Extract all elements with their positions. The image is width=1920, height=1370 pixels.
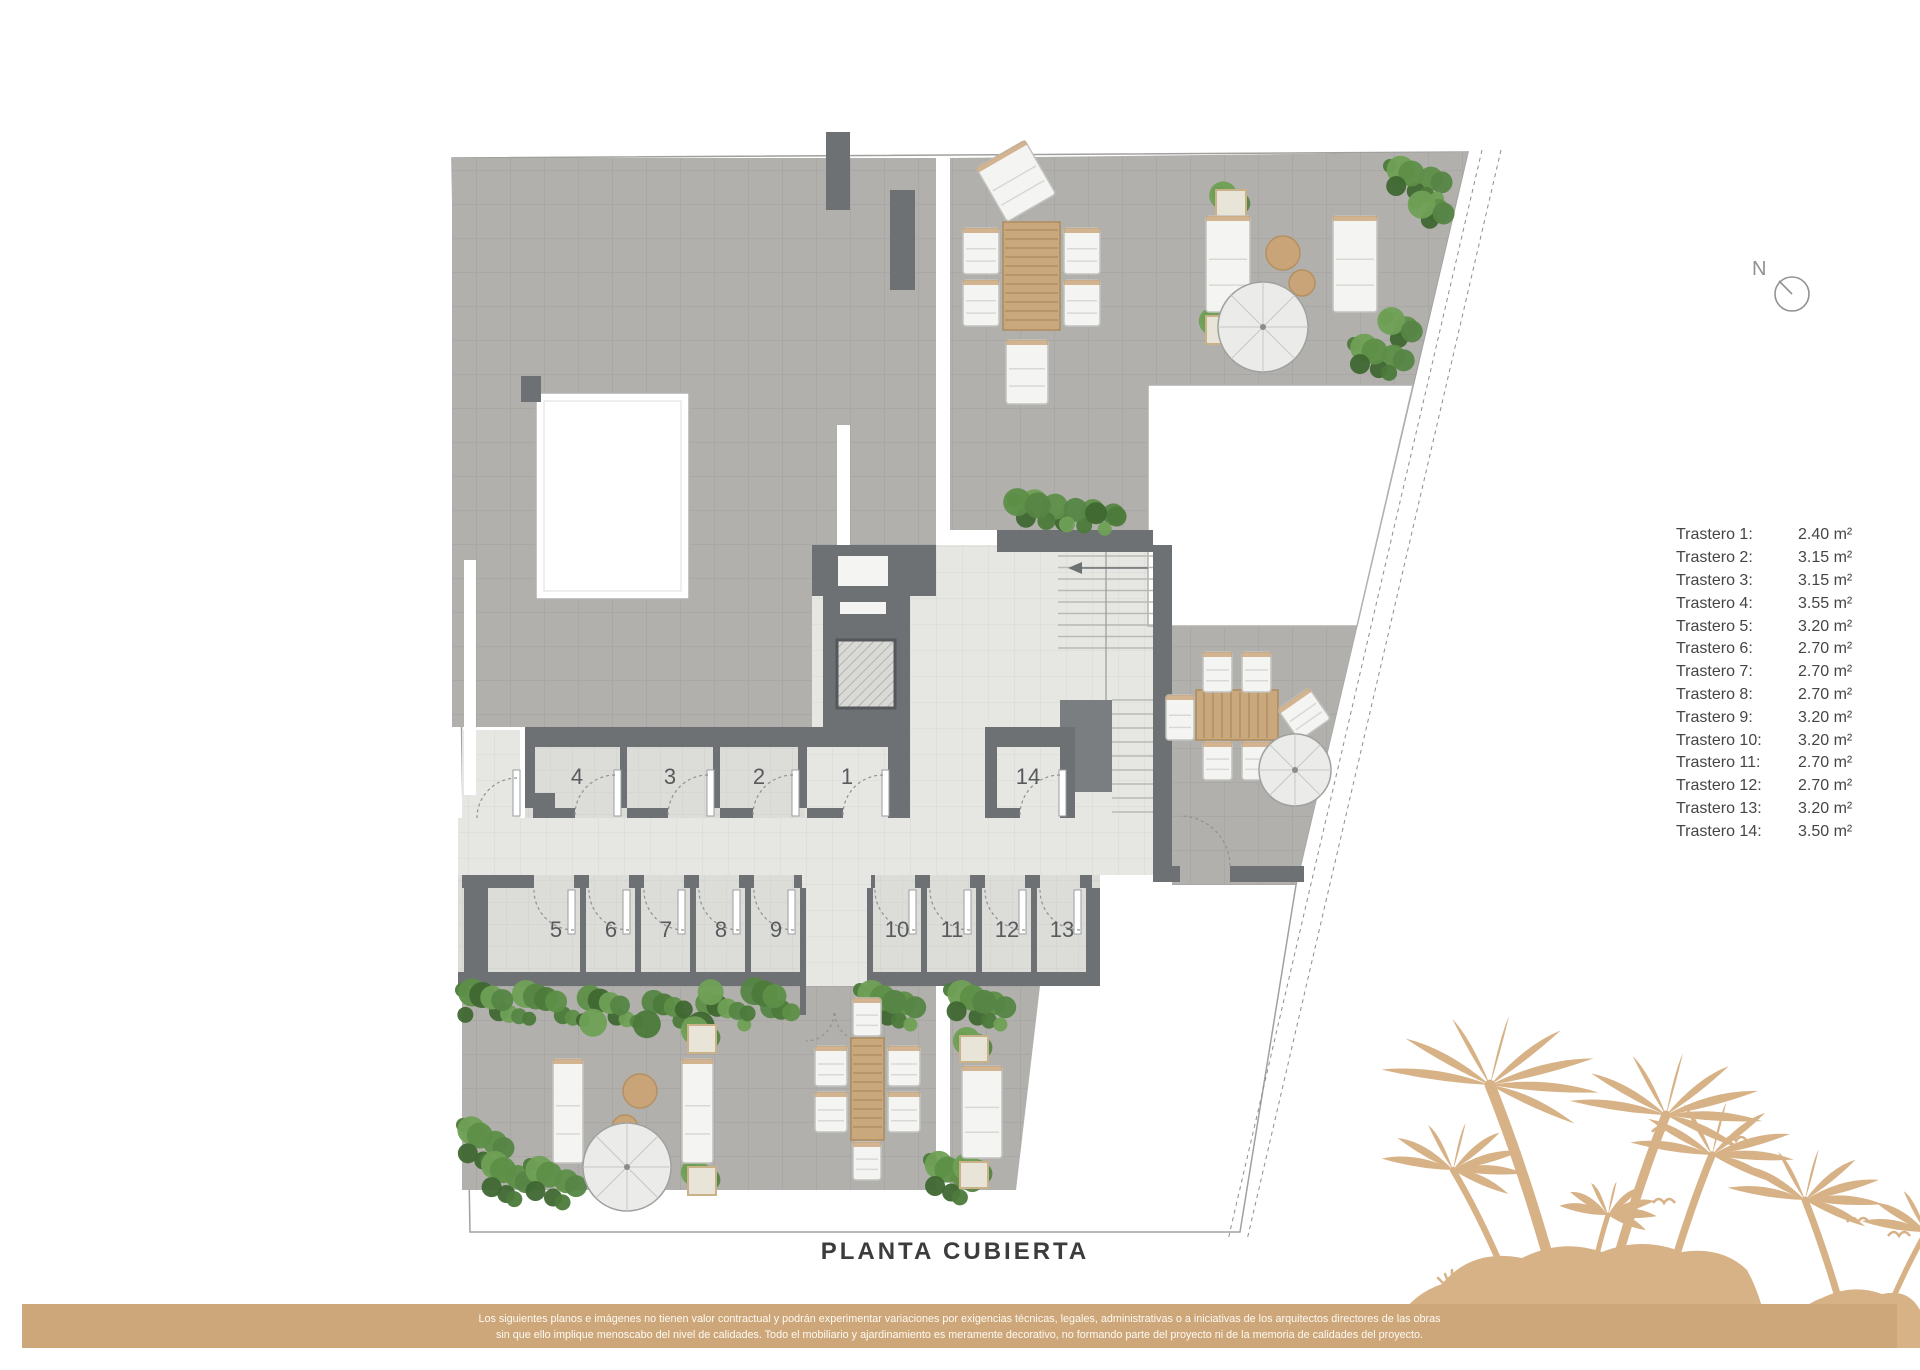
room-number-6: 6 — [605, 917, 617, 943]
room-number-2: 2 — [753, 764, 765, 790]
legend-label: Trastero 1: — [1676, 526, 1798, 544]
floor-plan-sheet: Trastero 1:2.40 m² Trastero 2:3.15 m² Tr… — [0, 0, 1920, 1370]
room-number-11: 11 — [941, 917, 964, 943]
legend-label: Trastero 2: — [1676, 549, 1798, 567]
legend-row: Trastero 7:2.70 m² — [1676, 661, 1896, 684]
legend-value: 3.55 m² — [1798, 595, 1852, 613]
legend-row: Trastero 12:2.70 m² — [1676, 775, 1896, 798]
disclaimer-bar: Los siguientes planos e imágenes no tien… — [22, 1304, 1897, 1348]
skylight — [838, 556, 888, 586]
legend-label: Trastero 4: — [1676, 595, 1798, 613]
legend-label: Trastero 7: — [1676, 663, 1798, 681]
elevator-car — [837, 640, 895, 708]
legend-value: 2.70 m² — [1798, 754, 1852, 772]
room-number-3: 3 — [664, 764, 676, 790]
legend-value: 3.20 m² — [1798, 800, 1852, 818]
room-number-10: 10 — [885, 917, 909, 943]
legend-value: 2.70 m² — [1798, 640, 1852, 658]
floor-plan-drawing — [0, 0, 1920, 1370]
legend-value: 3.50 m² — [1798, 823, 1852, 841]
legend-row: Trastero 8:2.70 m² — [1676, 684, 1896, 707]
area-legend: Trastero 1:2.40 m² Trastero 2:3.15 m² Tr… — [1676, 524, 1896, 843]
disclaimer-line-1: Los siguientes planos e imágenes no tien… — [22, 1311, 1897, 1327]
legend-row: Trastero 3:3.15 m² — [1676, 570, 1896, 593]
palm-trees-illustration — [1381, 1016, 1920, 1348]
legend-label: Trastero 12: — [1676, 777, 1798, 795]
legend-row: Trastero 14:3.50 m² — [1676, 820, 1896, 843]
legend-label: Trastero 3: — [1676, 572, 1798, 590]
elevator-door — [840, 602, 886, 614]
legend-row: Trastero 11:2.70 m² — [1676, 752, 1896, 775]
legend-row: Trastero 10:3.20 m² — [1676, 729, 1896, 752]
legend-row: Trastero 1:2.40 m² — [1676, 524, 1896, 547]
legend-value: 2.70 m² — [1798, 777, 1852, 795]
legend-value: 3.15 m² — [1798, 572, 1852, 590]
legend-label: Trastero 11: — [1676, 754, 1798, 772]
legend-value: 3.20 m² — [1798, 732, 1852, 750]
legend-row: Trastero 5:3.20 m² — [1676, 615, 1896, 638]
room-number-14: 14 — [1016, 764, 1040, 790]
legend-value: 2.70 m² — [1798, 663, 1852, 681]
legend-row: Trastero 4:3.55 m² — [1676, 592, 1896, 615]
legend-row: Trastero 2:3.15 m² — [1676, 547, 1896, 570]
legend-row: Trastero 9:3.20 m² — [1676, 706, 1896, 729]
legend-label: Trastero 10: — [1676, 732, 1798, 750]
legend-row: Trastero 13:3.20 m² — [1676, 798, 1896, 821]
legend-label: Trastero 5: — [1676, 618, 1798, 636]
legend-label: Trastero 14: — [1676, 823, 1798, 841]
legend-value: 3.20 m² — [1798, 618, 1852, 636]
north-label: N — [1752, 258, 1766, 281]
room-number-12: 12 — [995, 917, 1019, 943]
room-number-9: 9 — [770, 917, 782, 943]
north-arrow — [1775, 277, 1809, 311]
legend-label: Trastero 13: — [1676, 800, 1798, 818]
room-number-5: 5 — [550, 917, 562, 943]
legend-value: 2.70 m² — [1798, 686, 1852, 704]
room-number-4: 4 — [571, 764, 583, 790]
room-number-1: 1 — [841, 764, 853, 790]
legend-value: 3.20 m² — [1798, 709, 1852, 727]
legend-row: Trastero 6:2.70 m² — [1676, 638, 1896, 661]
legend-label: Trastero 6: — [1676, 640, 1798, 658]
page-title: PLANTA CUBIERTA — [821, 1238, 1090, 1266]
legend-value: 3.15 m² — [1798, 549, 1852, 567]
disclaimer-line-2: sin que ello implique menoscabo del nive… — [22, 1327, 1897, 1343]
room-number-7: 7 — [660, 917, 672, 943]
legend-value: 2.40 m² — [1798, 526, 1852, 544]
legend-label: Trastero 9: — [1676, 709, 1798, 727]
room-number-13: 13 — [1050, 917, 1074, 943]
room-number-8: 8 — [715, 917, 727, 943]
legend-label: Trastero 8: — [1676, 686, 1798, 704]
